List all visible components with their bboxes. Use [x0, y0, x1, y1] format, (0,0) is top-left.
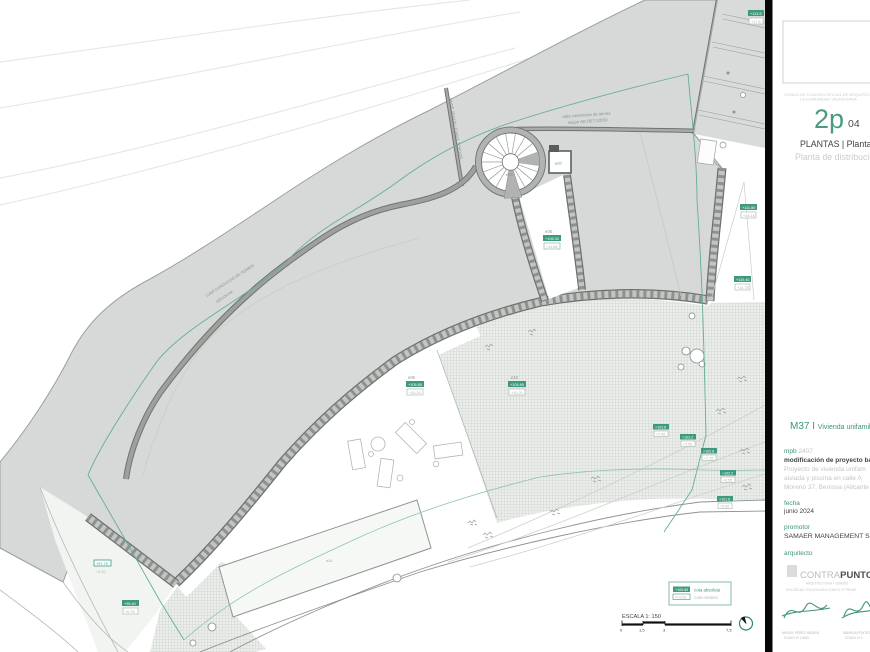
svg-text:e10: e10 [511, 375, 519, 380]
svg-text:arquitecto: arquitecto [784, 550, 813, 557]
svg-text:+7.15: +7.15 [704, 457, 713, 461]
svg-text:e06: e06 [545, 229, 553, 234]
svg-text:+97.75: +97.75 [96, 562, 108, 566]
svg-text:+10.20: +10.20 [409, 391, 421, 395]
svg-text:+0.75: +0.75 [125, 610, 135, 614]
svg-text:+10.20: +10.20 [511, 391, 523, 395]
svg-text:+6.55: +6.55 [723, 479, 732, 483]
svg-text:+/-0.00: +/-0.00 [675, 596, 686, 600]
svg-text:promotor: promotor [784, 524, 811, 531]
svg-text:ESCALA 1: 150: ESCALA 1: 150 [622, 614, 661, 620]
svg-text:+96.40: +96.40 [124, 602, 136, 606]
svg-text:+5.95: +5.95 [720, 505, 729, 509]
svg-text:+102.8: +102.8 [703, 450, 714, 454]
svg-text:2p: 2p [814, 104, 844, 134]
svg-text:+17.8: +17.8 [751, 20, 761, 24]
svg-text:1,5: 1,5 [639, 628, 645, 633]
svg-text:+110.40: +110.40 [736, 278, 750, 282]
svg-text:modificación de proyecto bás: modificación de proyecto bás [784, 457, 870, 464]
svg-text:+16.15: +16.15 [743, 214, 755, 218]
svg-text:e09: e09 [408, 375, 416, 380]
svg-text:PLANTAS | Planta baja: PLANTAS | Planta baja [800, 139, 870, 149]
svg-text:+106.30: +106.30 [545, 237, 559, 241]
svg-text:+105.85: +105.85 [510, 383, 524, 387]
svg-text:COACV nº 14319: COACV nº 14319 [784, 636, 809, 640]
svg-text:7,5: 7,5 [726, 628, 732, 633]
svg-text:e07: e07 [555, 161, 563, 166]
svg-text:cota absoluta: cota absoluta [694, 588, 721, 593]
svg-text:+7.55: +7.55 [683, 443, 692, 447]
svg-text:ARQUITECTURA + DISEÑO: ARQUITECTURA + DISEÑO [806, 581, 849, 586]
svg-text:COACV nº 1: COACV nº 1 [845, 636, 863, 640]
svg-text:+103.2: +103.2 [682, 436, 693, 440]
svg-text:fecha: fecha [784, 500, 800, 507]
svg-text:aislada y piscina en calle: aislada y piscina en calle A [784, 475, 862, 482]
svg-text:04: 04 [848, 118, 860, 130]
svg-text:Planta de distribución y: Planta de distribución y [795, 152, 870, 162]
svg-text:+113.5: +113.5 [750, 12, 761, 16]
svg-text:+11.65: +11.65 [546, 245, 557, 249]
svg-text:+2.10: +2.10 [96, 570, 106, 574]
svg-text:+102.2: +102.2 [722, 472, 733, 476]
svg-text:e05: e05 [506, 172, 514, 177]
svg-text:+101.6: +101.6 [719, 498, 730, 502]
svg-text:CONTRAPUNTO: CONTRAPUNTO [800, 570, 870, 581]
svg-text:LA COMUNIDAD VALENCIANA: LA COMUNIDAD VALENCIANA [800, 97, 857, 102]
svg-text:+103.6: +103.6 [655, 426, 666, 430]
svg-text:+105.85: +105.85 [408, 383, 422, 387]
svg-text:DANIELA PONTES: DANIELA PONTES [843, 631, 870, 635]
svg-text:SOCIEDAD COLEGIADA COACV nº PR: SOCIEDAD COLEGIADA COACV nº PRoW [786, 588, 857, 592]
svg-text:Moreno 37, Benissa (Alicante: Moreno 37, Benissa (Alicante [784, 484, 869, 491]
svg-text:mpb 2407: mpb 2407 [784, 448, 813, 455]
svg-text:+111.80: +111.80 [742, 206, 755, 210]
svg-text:cota relativa: cota relativa [694, 595, 718, 600]
svg-text:+14.75: +14.75 [737, 286, 749, 290]
svg-text:Proyecto de vivienda unifam: Proyecto de vivienda unifam [784, 466, 866, 473]
svg-text:junio 2024: junio 2024 [783, 508, 814, 515]
svg-text:+105.85: +105.85 [675, 588, 688, 592]
svg-text:MIGUEL PÉREZ NATARIL: MIGUEL PÉREZ NATARIL [782, 630, 820, 635]
svg-text:e14: e14 [326, 559, 332, 563]
svg-text:SAMAER MANAGEMENT S.L: SAMAER MANAGEMENT S.L [784, 533, 870, 540]
svg-text:+7.95: +7.95 [656, 433, 665, 437]
